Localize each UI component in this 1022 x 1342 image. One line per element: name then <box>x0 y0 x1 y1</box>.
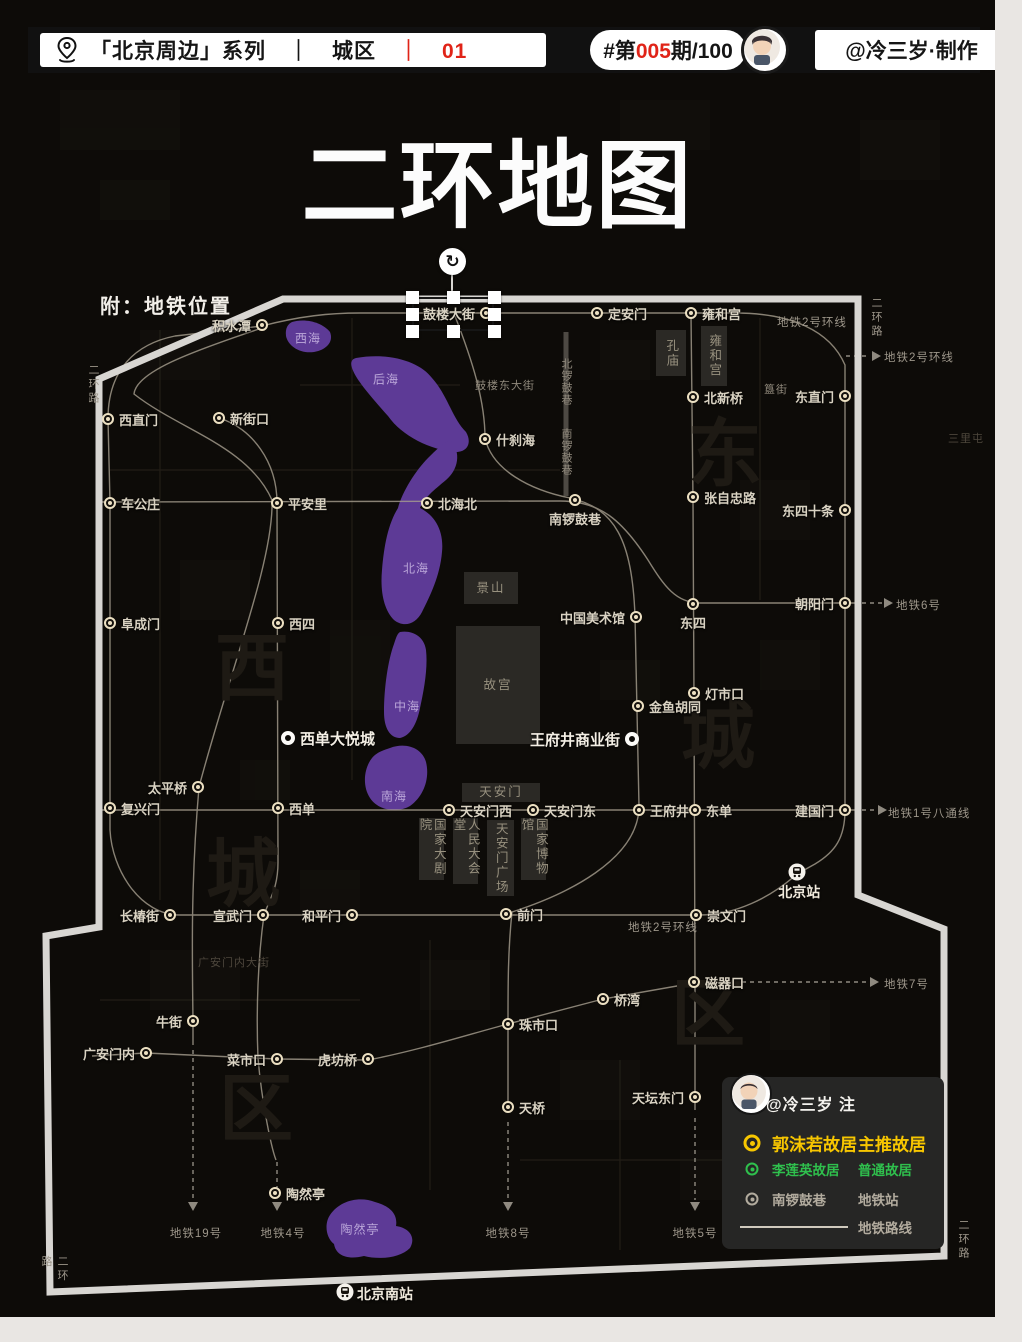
metro-station-label: 陶然亭 <box>286 1184 325 1203</box>
legend-panel: @冷三岁 注 郭沫若故居主推故居李莲英故居普通故居南锣鼓巷地铁站地铁路线 <box>722 1077 944 1249</box>
landmark-block: 人民大会堂 <box>453 818 478 884</box>
metro-station-label: 王府井 <box>650 801 689 820</box>
metro-line-label: 地铁8号 <box>486 1225 531 1241</box>
landmark-block: 景山 <box>464 572 518 604</box>
metro-station-icon <box>527 804 539 816</box>
metro-station-label: 新街口 <box>230 409 269 428</box>
author-badge: @冷三岁·制作 <box>815 30 995 70</box>
metro-station-label: 西直门 <box>119 410 158 429</box>
location-pin-icon <box>54 36 80 64</box>
landmark-block: 故宫 <box>456 626 540 744</box>
landmark-block: 国家大剧院 <box>419 818 444 880</box>
metro-station-icon <box>104 802 116 814</box>
metro-station-icon <box>272 617 284 629</box>
metro-station-label: 广安门内 <box>83 1044 135 1063</box>
selection-handle-nw[interactable] <box>406 291 419 304</box>
metro-station-icon <box>689 804 701 816</box>
map-poster: 「北京周边」系列 ｜ 城区 ｜ 01 #第005期/100 @冷三岁·制作 二环… <box>0 0 995 1317</box>
metro-station-icon <box>630 611 642 623</box>
metro-station-label: 车公庄 <box>121 494 160 513</box>
metro-station-label: 西四 <box>289 614 315 633</box>
metro-station-label: 前门 <box>517 905 543 924</box>
selection-handle-w[interactable] <box>406 308 419 321</box>
metro-station-icon <box>687 598 699 610</box>
metro-station-label: 虎坊桥 <box>318 1050 357 1069</box>
metro-line-label: 地铁2号环线 <box>884 349 954 365</box>
landmark-block: 雍和宫 <box>701 326 727 386</box>
metro-line-label: 地铁7号 <box>884 976 929 992</box>
legend-title: @冷三岁 注 <box>766 1091 856 1115</box>
series-badge: 「北京周边」系列 ｜ 城区 ｜ 01 <box>40 33 546 67</box>
metro-station-label: 天安门东 <box>544 801 596 820</box>
lake-zhonghai <box>384 632 427 738</box>
metro-station-icon <box>839 390 851 402</box>
metro-station-label: 朝阳门 <box>795 594 834 613</box>
metro-station-icon <box>443 804 455 816</box>
metro-station-label: 宣武门 <box>213 906 252 925</box>
legend-type-label: 普通故居 <box>858 1159 912 1179</box>
railway-station-label: 北京站 <box>778 882 820 902</box>
street-label: 鼓楼东大街 <box>475 377 535 393</box>
legend-row: 李莲英故居普通故居 <box>722 1159 944 1179</box>
selection-handle-ne[interactable] <box>488 291 501 304</box>
railway-station-label: 北京南站 <box>357 1284 413 1304</box>
metro-station-label: 积水潭 <box>212 316 251 335</box>
metro-station-label: 太平桥 <box>148 778 187 797</box>
metro-line-label: 地铁19号 <box>170 1225 222 1241</box>
metro-station-label: 菜市口 <box>227 1050 266 1069</box>
lake-label: 中海 <box>394 698 420 715</box>
metro-station-icon <box>690 909 702 921</box>
metro-station-label: 东直门 <box>795 387 834 406</box>
metro-line-sample <box>740 1226 848 1228</box>
metro-station-icon <box>346 909 358 921</box>
metro-station-icon <box>104 617 116 629</box>
metro-station-icon <box>633 804 645 816</box>
poster-title: 二环地图 <box>0 108 995 247</box>
metro-station-label: 崇文门 <box>707 906 746 925</box>
metro-station-icon <box>597 993 609 1005</box>
selection-handle-sw[interactable] <box>406 325 419 338</box>
metro-station-icon <box>140 1047 152 1059</box>
legend-type-label: 主推故居 <box>858 1131 926 1156</box>
lakes <box>286 320 469 1257</box>
metro-station-label: 珠市口 <box>519 1015 558 1034</box>
metro-station-icon <box>104 497 116 509</box>
author-avatar <box>741 26 789 74</box>
selection-handle-se[interactable] <box>488 325 501 338</box>
metro-station-icon <box>632 700 644 712</box>
metro-station-label: 和平门 <box>302 906 341 925</box>
ring-icon-dot <box>750 1141 755 1146</box>
metro-station-icon <box>421 497 433 509</box>
metro-station-icon <box>257 909 269 921</box>
metro-station-icon <box>271 1053 283 1065</box>
metro-station-icon <box>839 804 851 816</box>
series-label: 「北京周边」系列 ｜ 城区 ｜ 01 <box>90 35 467 65</box>
metro-station-label: 阜成门 <box>121 614 160 633</box>
metro-line-label: 地铁2号环线 <box>777 314 847 330</box>
metro-station-label: 长椿街 <box>120 906 159 925</box>
street-label: 北锣鼓巷 <box>558 358 574 406</box>
district-watermark: 东 <box>688 395 762 502</box>
metro-station-label: 张自忠路 <box>704 488 756 507</box>
metro-line-label: 地铁4号 <box>261 1225 306 1241</box>
ring-road-label: 二环路 <box>38 1256 70 1297</box>
metro-station-label: 北海北 <box>438 494 477 513</box>
metro-station-label: 金鱼胡同 <box>649 697 701 716</box>
metro-station-label: 牛街 <box>156 1012 182 1031</box>
legend-row: 地铁路线 <box>722 1217 944 1237</box>
metro-station-icon <box>192 781 204 793</box>
metro-station-icon <box>164 909 176 921</box>
selection-handle-n[interactable] <box>447 291 460 304</box>
metro-station-icon <box>272 802 284 814</box>
ring-road-label: 二环路 <box>85 364 101 406</box>
landmark-block: 国家博物馆 <box>521 818 546 880</box>
landmark-block: 孔庙 <box>656 330 686 376</box>
metro-station-label: 东单 <box>706 801 732 820</box>
rotate-handle[interactable]: ↻ <box>439 248 466 275</box>
legend-type-label: 地铁路线 <box>858 1217 912 1237</box>
metro-station-icon <box>256 319 268 331</box>
landmark-block: 天安门广场 <box>487 820 514 896</box>
ring-icon-dot <box>750 1167 754 1171</box>
metro-station-icon <box>569 494 581 506</box>
yellow-ring-icon <box>744 1135 761 1152</box>
lake-label: 西海 <box>295 330 321 347</box>
landmark-block: 天安门 <box>462 783 540 802</box>
metro-station-icon <box>502 1018 514 1030</box>
metro-station-icon <box>187 1015 199 1027</box>
metro-station-icon <box>362 1053 374 1065</box>
selection-handle-s[interactable] <box>447 325 460 338</box>
metro-station-label: 北新桥 <box>704 388 743 407</box>
train-icon <box>336 1283 354 1306</box>
metro-line-label: 地铁6号 <box>896 597 941 613</box>
poi-label: 西单大悦城 <box>300 728 375 749</box>
metro-station-icon <box>502 1101 514 1113</box>
metro-station-label: 复兴门 <box>121 799 160 818</box>
metro-station-icon <box>689 1091 701 1103</box>
lake-label: 南海 <box>381 788 407 805</box>
metro-station-label: 西单 <box>289 799 315 818</box>
metro-station-icon <box>591 307 603 319</box>
metro-station-label: 东四十条 <box>782 501 834 520</box>
metro-station-label: 东四 <box>680 613 706 632</box>
selection-handle-e[interactable] <box>488 308 501 321</box>
ring-road-label: 二环路 <box>868 297 884 339</box>
metro-station-icon <box>213 412 225 424</box>
metro-station-icon <box>839 597 851 609</box>
issue-badge: #第005期/100 <box>590 30 746 70</box>
poi-label: 王府井商业街 <box>530 729 620 750</box>
district-watermark: 区 <box>671 955 745 1062</box>
street-label: 三里屯 <box>948 430 984 446</box>
metro-station-icon <box>685 307 697 319</box>
legend-row: 南锣鼓巷地铁站 <box>722 1189 944 1209</box>
metro-ring-icon <box>746 1193 759 1206</box>
street-label: 南锣鼓巷 <box>558 428 574 476</box>
poi-circle-icon <box>625 732 639 746</box>
lake-label: 北海 <box>403 560 429 577</box>
metro-station-label: 灯市口 <box>705 684 744 703</box>
metro-station-icon <box>839 504 851 516</box>
metro-station-label: 天坛东门 <box>632 1088 684 1107</box>
poi-circle-icon <box>281 731 295 745</box>
metro-station-icon <box>500 908 512 920</box>
metro-station-label: 雍和宫 <box>702 304 741 323</box>
metro-line-label: 地铁5号 <box>673 1225 718 1241</box>
metro-station-label: 天桥 <box>519 1098 545 1117</box>
legend-name-label: 郭沫若故居 <box>772 1131 857 1156</box>
metro-station-icon <box>687 391 699 403</box>
metro-station-icon <box>102 413 114 425</box>
lake-label: 后海 <box>373 371 399 388</box>
legend-name-label: 南锣鼓巷 <box>772 1189 826 1209</box>
metro-station-icon <box>688 976 700 988</box>
metro-station-icon <box>687 491 699 503</box>
metro-station-label: 定安门 <box>608 304 647 323</box>
poster-subtitle: 附：地铁位置 <box>100 290 232 319</box>
lake-label: 陶然亭 <box>340 1221 379 1238</box>
metro-line-label: 地铁1号八通线 <box>888 805 970 821</box>
header-bar: 「北京周边」系列 ｜ 城区 ｜ 01 #第005期/100 @冷三岁·制作 <box>28 27 980 73</box>
ring-icon-dot <box>750 1197 754 1201</box>
street-label: 簋街 <box>764 381 788 397</box>
metro-station-icon <box>269 1187 281 1199</box>
legend-row: 郭沫若故居主推故居 <box>722 1133 944 1153</box>
street-label: 广安门内大街 <box>198 954 270 970</box>
metro-station-label: 南锣鼓巷 <box>549 509 601 528</box>
metro-station-label: 桥湾 <box>614 990 640 1009</box>
green-ring-icon <box>746 1163 759 1176</box>
metro-station-label: 磁器口 <box>705 973 744 992</box>
metro-station-icon <box>479 433 491 445</box>
metro-station-label: 什刹海 <box>496 430 535 449</box>
legend-name-label: 李莲英故居 <box>772 1159 840 1179</box>
metro-station-label: 中国美术馆 <box>560 608 625 627</box>
metro-station-icon <box>271 497 283 509</box>
metro-station-label: 平安里 <box>288 494 327 513</box>
legend-type-label: 地铁站 <box>858 1189 899 1209</box>
lake-houhai <box>351 356 469 452</box>
metro-station-label: 建国门 <box>795 801 834 820</box>
metro-station-label: 天安门西 <box>460 801 512 820</box>
metro-line-label: 地铁2号环线 <box>628 919 698 935</box>
ring-road-label: 二环路 <box>955 1219 971 1261</box>
